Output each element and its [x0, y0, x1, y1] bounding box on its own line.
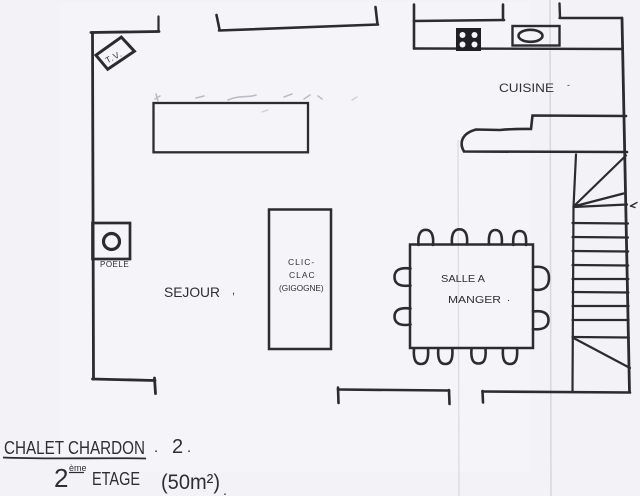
svg-text:MANGER: MANGER	[448, 294, 501, 306]
svg-text:(GIGOGNE): (GIGOGNE)	[279, 284, 324, 293]
svg-text:.: .	[187, 439, 191, 456]
svg-text:,: ,	[232, 285, 235, 297]
svg-text:SEJOUR: SEJOUR	[164, 284, 220, 300]
svg-text:.: .	[507, 292, 510, 304]
svg-text:CLIC-: CLIC-	[288, 257, 315, 267]
svg-text:-: -	[567, 80, 570, 90]
svg-text:(50m²): (50m²)	[161, 471, 220, 494]
svg-text:POELE: POELE	[100, 260, 129, 269]
svg-text:CUISINE: CUISINE	[499, 83, 554, 95]
svg-text:.: .	[154, 439, 158, 456]
svg-text:SALLE A: SALLE A	[441, 273, 485, 285]
svg-text:2: 2	[172, 436, 183, 458]
svg-text:CLAC: CLAC	[289, 270, 316, 280]
svg-text:ETAGE: ETAGE	[92, 469, 140, 489]
svg-text:.: .	[223, 482, 227, 496]
svg-text:CHALET CHARDON: CHALET CHARDON	[4, 438, 145, 458]
svg-text:2: 2	[54, 463, 68, 493]
svg-text:ème: ème	[69, 463, 87, 473]
